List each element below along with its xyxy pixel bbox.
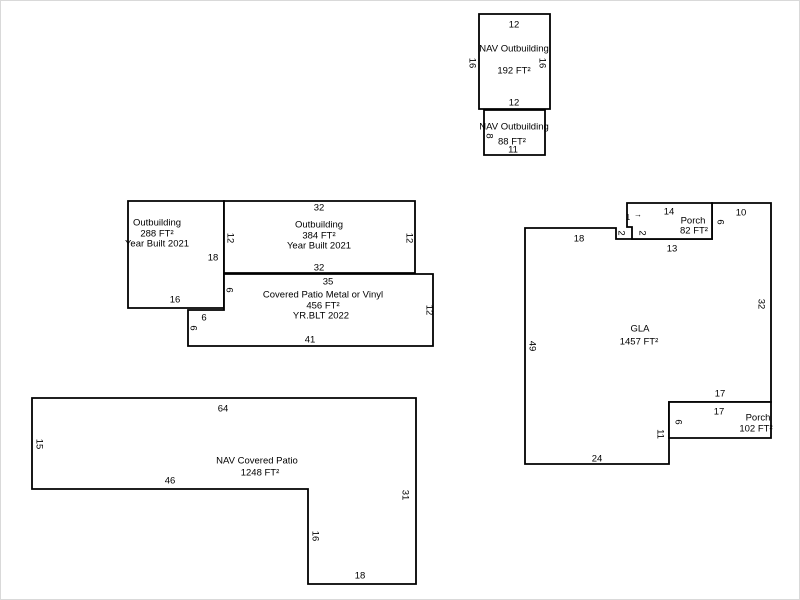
outbuilding-384-label-0: 32	[314, 203, 325, 214]
gla-1457-label-2: 1	[626, 213, 631, 222]
nav-covered-patio-1248-label-4: 46	[165, 476, 176, 487]
nav-covered-patio-1248-label-1: 15	[33, 439, 44, 450]
covered-patio-456-label-2: Covered Patio Metal or Vinyl	[263, 290, 383, 301]
nav-covered-patio-1248-label-5: 31	[399, 490, 410, 501]
nav-covered-patio-1248-label-3: 1248 FT²	[241, 468, 280, 479]
porch-102-label-0: 17	[714, 407, 725, 418]
covered-patio-456-label-6: 6	[201, 313, 206, 324]
porch-102-label-1: 6	[672, 419, 683, 424]
outbuilding-384-label-1: Outbuilding	[295, 220, 343, 231]
gla-1457-label-1: 2	[615, 230, 626, 235]
outbuilding-384-label-2: 12	[224, 233, 235, 244]
covered-patio-456-label-5: 12	[423, 305, 434, 316]
nav-outbuilding-192-label-5: 12	[509, 98, 520, 109]
nav-covered-patio-1248-label-2: NAV Covered Patio	[216, 456, 298, 467]
gla-1457-label-11: 17	[715, 389, 726, 400]
nav-outbuilding-88-label-1: 8	[483, 133, 494, 138]
porch-102-label-2: Porch	[746, 413, 771, 424]
gla-1457-label-8: 1457 FT²	[620, 337, 659, 348]
porch-82-label-2: 82 FT²	[680, 226, 708, 237]
nav-covered-patio-1248-label-6: 16	[309, 531, 320, 542]
nav-covered-patio-1248-label-7: 18	[355, 571, 366, 582]
outbuilding-288-label-2: Year Built 2021	[125, 239, 189, 250]
nav-outbuilding-192-label-2: 16	[466, 58, 477, 69]
gla-1457-label-3: →	[634, 210, 642, 219]
gla-1457-label-5: 13	[667, 244, 678, 255]
covered-patio-456-label-0: 35	[323, 277, 334, 288]
covered-patio-456-label-7: 6	[187, 325, 198, 330]
nav-outbuilding-192-label-0: 12	[509, 20, 520, 31]
gla-1457-label-6: 10	[736, 208, 747, 219]
nav-covered-patio-1248-outline	[32, 398, 416, 584]
outbuilding-288-label-3: 18	[208, 253, 219, 264]
gla-1457-label-9: 49	[526, 341, 537, 352]
covered-patio-456-label-8: 41	[305, 335, 316, 346]
porch-82-label-3: 6	[714, 219, 725, 224]
gla-1457-label-13: 24	[592, 454, 603, 465]
gla-1457-label-7: GLA	[630, 324, 650, 335]
property-sketch-canvas: 12NAV Outbuilding1616192 FT²12NAV Outbui…	[1, 1, 800, 600]
sketch-page: 12NAV Outbuilding1616192 FT²12NAV Outbui…	[0, 0, 800, 600]
covered-patio-456-label-4: YR.BLT 2022	[293, 311, 349, 322]
covered-patio-456-label-1: 6	[223, 287, 234, 292]
outbuilding-288-label-4: 16	[170, 295, 181, 306]
outbuilding-384-label-4: Year Built 2021	[287, 241, 351, 252]
outbuilding-384-label-5: 12	[403, 233, 414, 244]
gla-1457-label-10: 32	[755, 299, 766, 310]
nav-outbuilding-88-label-3: 11	[508, 145, 518, 156]
nav-covered-patio-1248-label-0: 64	[218, 404, 229, 415]
porch-102-label-3: 102 FT²	[739, 424, 772, 435]
nav-outbuilding-192-label-3: 16	[536, 58, 547, 69]
nav-outbuilding-192-label-1: NAV Outbuilding	[479, 44, 549, 55]
gla-1457-label-0: 18	[574, 234, 585, 245]
outbuilding-288-label-0: Outbuilding	[133, 218, 181, 229]
gla-1457-label-4: 2	[636, 230, 647, 235]
nav-outbuilding-88-label-0: NAV Outbuilding	[479, 122, 549, 133]
nav-outbuilding-192-label-4: 192 FT²	[497, 66, 530, 77]
outbuilding-384-label-6: 32	[314, 263, 325, 274]
porch-82-label-0: 14	[664, 207, 675, 218]
gla-1457-label-12: 11	[654, 429, 665, 439]
